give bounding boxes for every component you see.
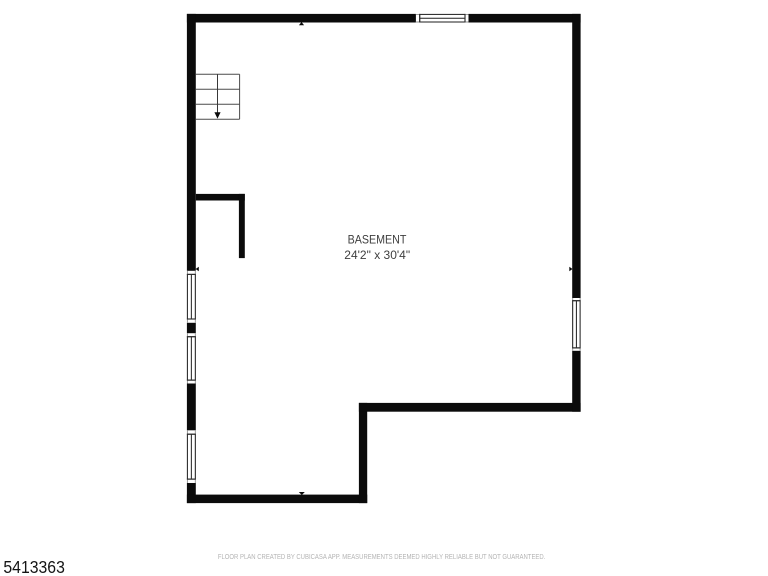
svg-text:FLOOR PLAN CREATED BY CUBICASA: FLOOR PLAN CREATED BY CUBICASA APP. MEAS… — [218, 552, 546, 561]
svg-text:24'2" x 30'4": 24'2" x 30'4" — [344, 250, 410, 262]
svg-text:BASEMENT: BASEMENT — [348, 235, 407, 247]
svg-text:5413363: 5413363 — [3, 557, 65, 576]
